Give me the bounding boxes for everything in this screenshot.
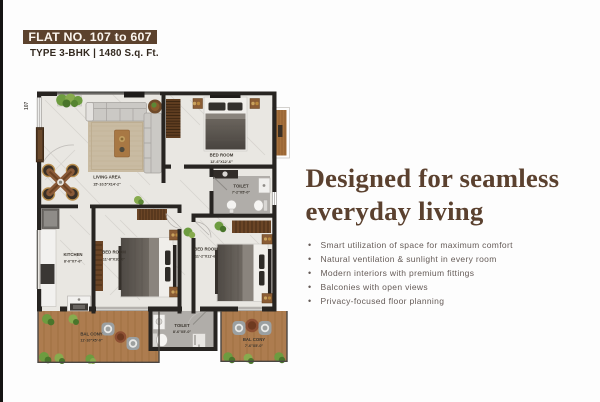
svg-text:107: 107 xyxy=(24,101,30,110)
svg-text:12'-6"X12'-6": 12'-6"X12'-6" xyxy=(210,160,233,164)
svg-text:7'-2"X5'-0": 7'-2"X5'-0" xyxy=(232,191,251,195)
svg-text:7'-6"X5'-0": 7'-6"X5'-0" xyxy=(245,344,264,348)
svg-text:LIVING AREA: LIVING AREA xyxy=(93,175,121,180)
svg-text:11'-8"X10'-0": 11'-8"X10'-0" xyxy=(103,258,126,262)
svg-text:BED ROOM: BED ROOM xyxy=(194,247,218,252)
svg-text:KITCHEN: KITCHEN xyxy=(63,252,82,257)
svg-text:15'-10.5"X14'-2": 15'-10.5"X14'-2" xyxy=(93,183,121,187)
svg-text:11'-10"X5'-0": 11'-10"X5'-0" xyxy=(80,339,103,343)
svg-text:BAL CONY: BAL CONY xyxy=(243,337,265,342)
svg-text:11'-2"X11'-6": 11'-2"X11'-6" xyxy=(195,255,217,259)
svg-text:TOILET: TOILET xyxy=(174,323,190,328)
svg-text:8'-6"X5'-0": 8'-6"X5'-0" xyxy=(173,330,192,334)
svg-text:BED ROOM: BED ROOM xyxy=(102,250,126,255)
svg-text:BAL CONY: BAL CONY xyxy=(80,332,102,337)
svg-text:BED ROOM: BED ROOM xyxy=(210,153,234,158)
svg-text:8'-0"X7'-6": 8'-0"X7'-6" xyxy=(64,260,83,264)
svg-text:TOILET: TOILET xyxy=(233,184,249,189)
